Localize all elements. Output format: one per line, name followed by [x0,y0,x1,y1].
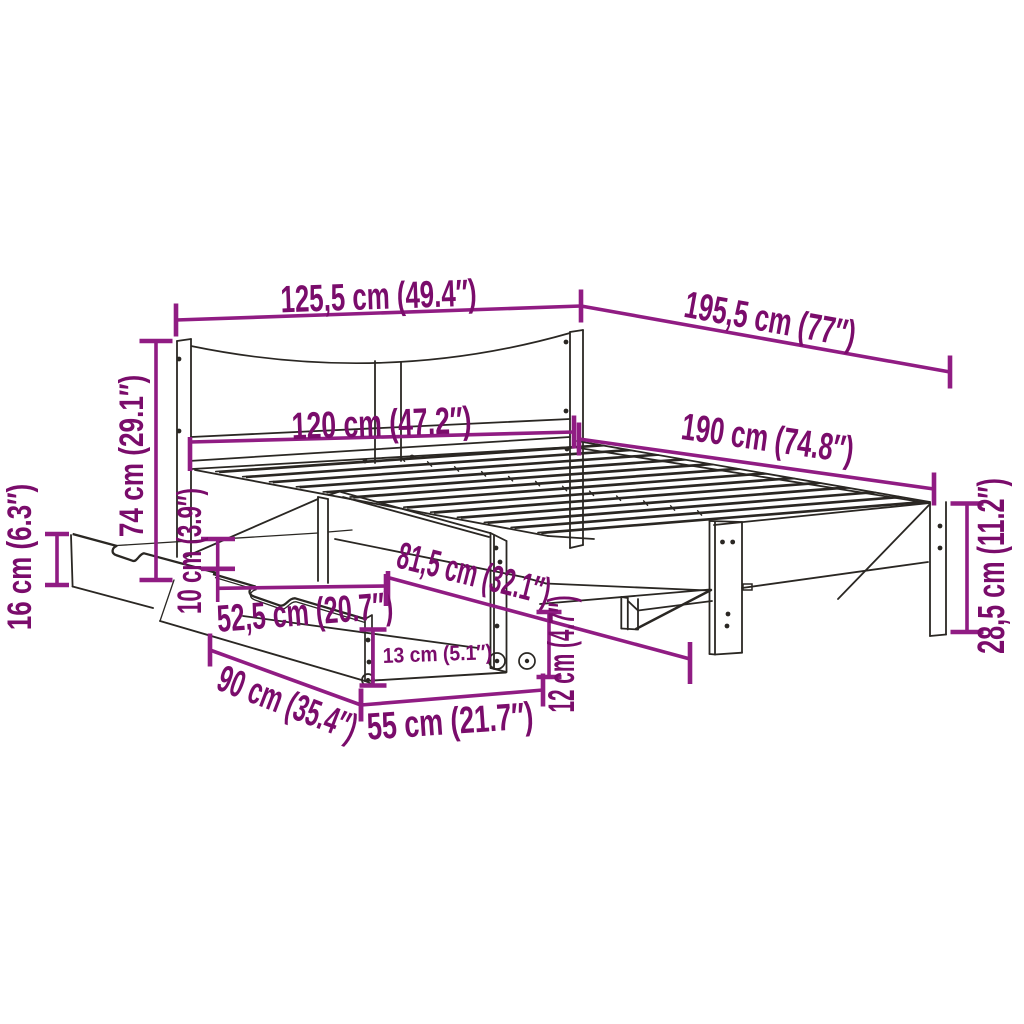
svg-text:125,5 cm (49.4″): 125,5 cm (49.4″) [280,272,478,321]
svg-text:16 cm (6.3″): 16 cm (6.3″) [2,484,39,630]
svg-text:10 cm (3.9″): 10 cm (3.9″) [171,488,209,614]
svg-text:12 cm (4.7″): 12 cm (4.7″) [542,596,583,713]
svg-text:74 cm (29.1″): 74 cm (29.1″) [114,375,151,537]
svg-text:120 cm (47.2″): 120 cm (47.2″) [291,398,472,447]
svg-text:28,5 cm (11.2″): 28,5 cm (11.2″) [970,478,1012,654]
svg-text:13 cm (5.1″): 13 cm (5.1″) [382,640,492,668]
